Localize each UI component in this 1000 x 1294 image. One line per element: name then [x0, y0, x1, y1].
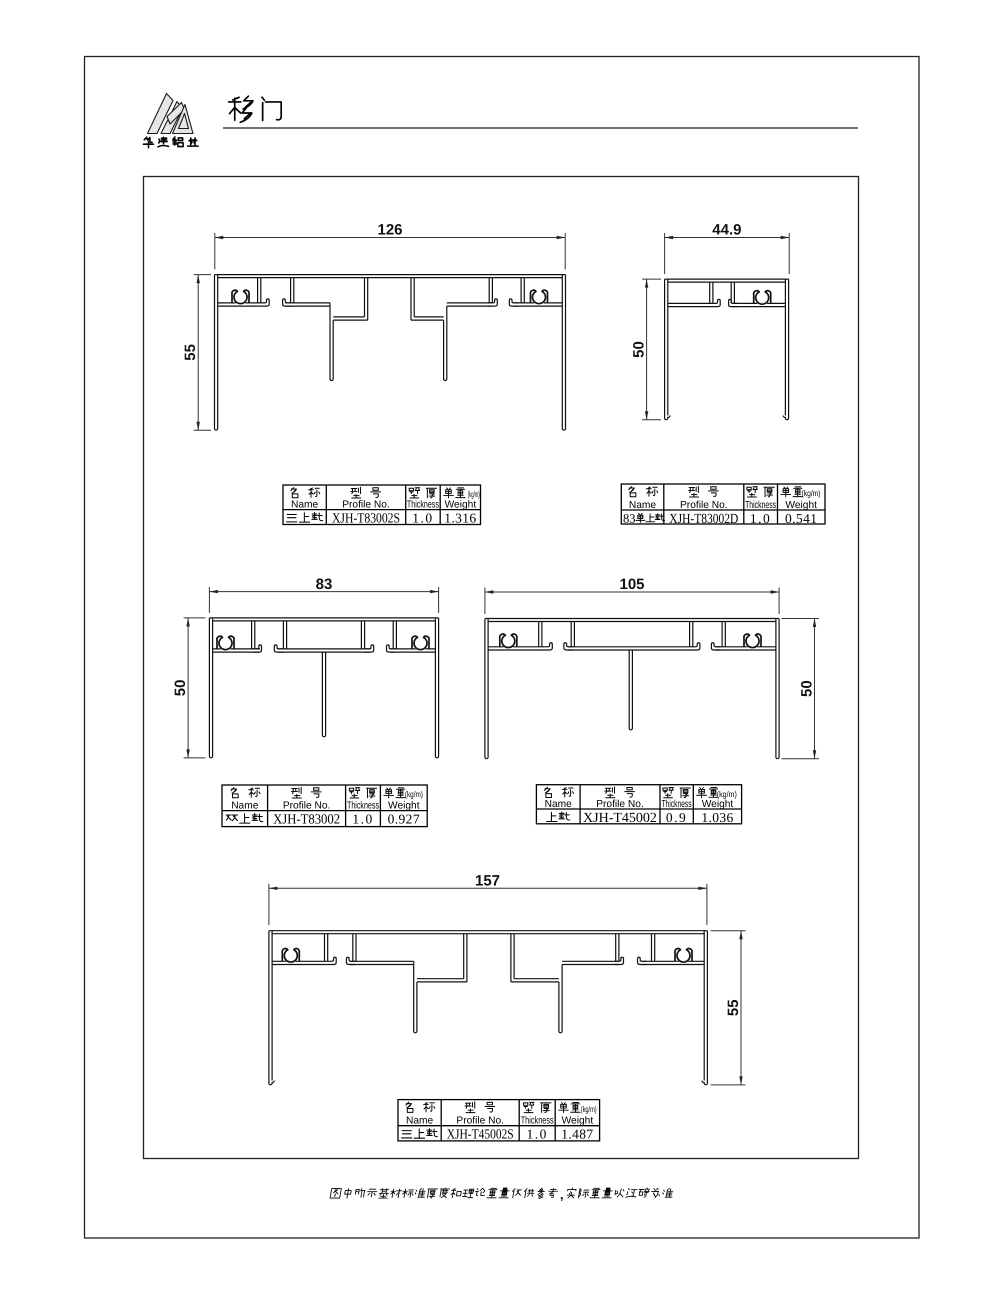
svg-text:Profile No.: Profile No. — [456, 1116, 504, 1127]
svg-text:44.9: 44.9 — [712, 222, 741, 239]
svg-text:1.487: 1.487 — [561, 1127, 593, 1142]
svg-text:Weight: Weight — [562, 1116, 594, 1127]
svg-text:105: 105 — [619, 576, 644, 593]
svg-text:83: 83 — [316, 576, 333, 593]
svg-text:50: 50 — [798, 680, 815, 697]
svg-text:0.9: 0.9 — [666, 810, 687, 825]
svg-text:55: 55 — [725, 999, 742, 1016]
svg-text:50: 50 — [172, 680, 189, 697]
svg-text:Name: Name — [291, 500, 319, 511]
svg-text:Name: Name — [231, 801, 259, 812]
svg-text:1.0: 1.0 — [750, 511, 771, 526]
svg-text:Weight: Weight — [445, 500, 477, 511]
svg-text:Name: Name — [629, 500, 657, 511]
svg-text:50: 50 — [630, 341, 647, 358]
svg-text:1.0: 1.0 — [527, 1127, 548, 1142]
svg-text:(kg/m): (kg/m) — [405, 789, 423, 799]
svg-text:XJH-T83002S: XJH-T83002S — [332, 512, 400, 527]
svg-text:Thickness: Thickness — [662, 799, 692, 810]
svg-text:1.0: 1.0 — [412, 511, 433, 526]
svg-text:Profile No.: Profile No. — [680, 500, 728, 511]
svg-text:1.316: 1.316 — [444, 511, 476, 526]
svg-text:Weight: Weight — [388, 801, 420, 812]
svg-text:XJH-T45002S: XJH-T45002S — [447, 1128, 514, 1143]
svg-text:(kg/m): (kg/m) — [468, 489, 480, 499]
svg-text:Thickness: Thickness — [745, 500, 776, 511]
svg-text:55: 55 — [182, 344, 199, 361]
svg-text:157: 157 — [475, 873, 500, 890]
svg-text:Profile No.: Profile No. — [283, 801, 331, 812]
svg-text:0.927: 0.927 — [388, 812, 420, 827]
svg-text:126: 126 — [377, 222, 402, 239]
svg-text:Name: Name — [406, 1116, 434, 1127]
svg-text:Weight: Weight — [702, 799, 734, 810]
svg-text:Thickness: Thickness — [347, 801, 379, 812]
svg-text:0.541: 0.541 — [785, 511, 817, 526]
svg-text:Weight: Weight — [785, 500, 817, 511]
svg-text:Name: Name — [545, 799, 573, 810]
svg-text:(kg/m): (kg/m) — [802, 488, 821, 498]
svg-text:1.0: 1.0 — [352, 812, 373, 827]
svg-text:XJH-T83002D: XJH-T83002D — [669, 512, 738, 527]
svg-text:Thickness: Thickness — [521, 1116, 554, 1127]
svg-text:1.036: 1.036 — [701, 810, 733, 825]
svg-text:Profile No.: Profile No. — [596, 799, 644, 810]
svg-text:,: , — [560, 1188, 563, 1202]
svg-text:Thickness: Thickness — [407, 500, 439, 511]
svg-text:(kg/m): (kg/m) — [717, 789, 737, 799]
svg-text:XJH-T45002: XJH-T45002 — [583, 811, 657, 826]
svg-text:83: 83 — [623, 512, 636, 526]
svg-text:XJH-T83002: XJH-T83002 — [273, 813, 340, 828]
svg-text:Profile No.: Profile No. — [342, 500, 390, 511]
svg-text:(kg/m): (kg/m) — [581, 1104, 597, 1114]
